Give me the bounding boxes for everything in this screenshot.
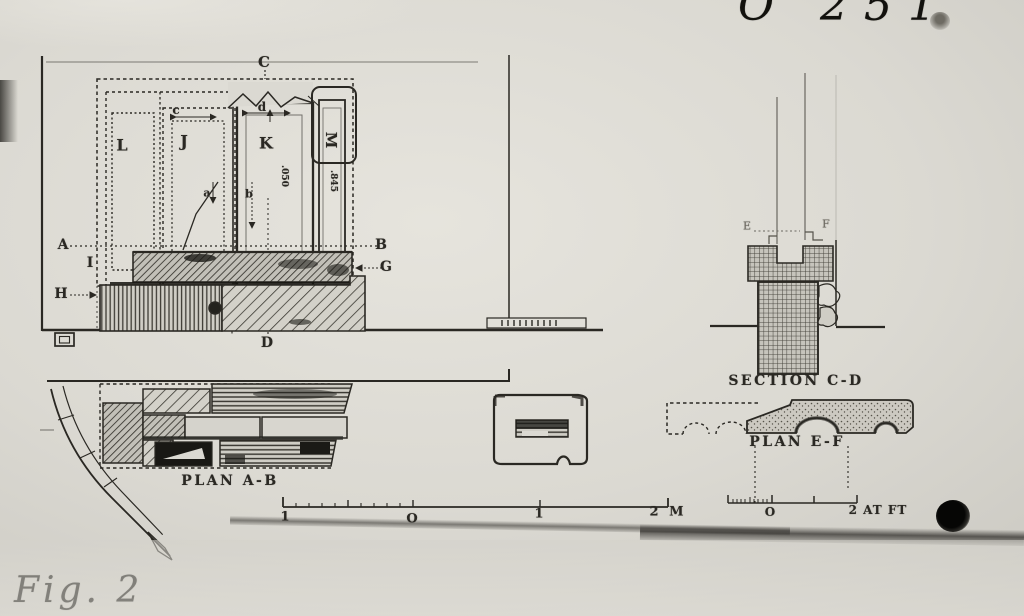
label-d: D [261,335,273,351]
photographed-drawing-fig2: C L J K M c d a b .050 .845 A B I G H D … [0,0,1024,616]
plan-ef-drawing [667,400,913,505]
loose-block-plan [494,395,587,464]
label-block-l: L [116,136,127,155]
catalog-number-handwriting: O 251 [738,0,952,31]
feet-scale-label-2ft: 2 AT FT [849,503,908,517]
preserved-scallops [747,400,913,433]
meter-scale-label-2m: 2 M [650,505,687,520]
figure-caption-handwriting: Fig. 2 [14,570,143,611]
meter-scale-bar [283,497,668,507]
label-dim-a: a [203,187,210,200]
clamp-icon [55,333,74,346]
label-h: H [54,286,67,302]
label-a: A [58,237,69,253]
technical-drawing [0,0,1024,616]
label-dim-d: d [258,100,266,114]
plan-ab-drawing [40,369,509,560]
restored-scallops [683,422,746,434]
meter-scale-label-1l: 1 [280,510,289,525]
feet-scale-label-0: O [765,505,775,519]
label-g: G [380,259,392,275]
section-cd-drawing [710,73,885,374]
label-i: I [87,255,94,271]
euthynteria-block [133,252,352,282]
projection-lines [755,446,848,505]
label-c: C [258,53,270,71]
clamp-hole [209,302,221,314]
wall-outline [777,73,805,244]
label-measure-k: .050 [279,165,289,187]
label-measure-m: .845 [328,170,338,192]
elevation-drawing [42,55,603,346]
label-block-m: M [322,132,340,149]
foundation-blocks [100,276,365,331]
meter-scale-label-1r: 1 [534,507,543,522]
label-f: F [822,218,830,231]
label-block-k: K [259,134,273,153]
label-dim-b: b [245,188,253,201]
feet-scale-bar [728,495,857,503]
section-cd-caption: SECTION C-D [728,373,863,389]
label-e: E [743,220,751,233]
label-block-j: J [180,132,188,151]
label-dim-c: c [172,103,179,117]
label-b: B [375,237,387,253]
plan-ef-caption: PLAN E-F [749,434,845,450]
plan-ab-caption: PLAN A-B [181,473,278,489]
meter-scale-label-0: O [406,512,417,527]
